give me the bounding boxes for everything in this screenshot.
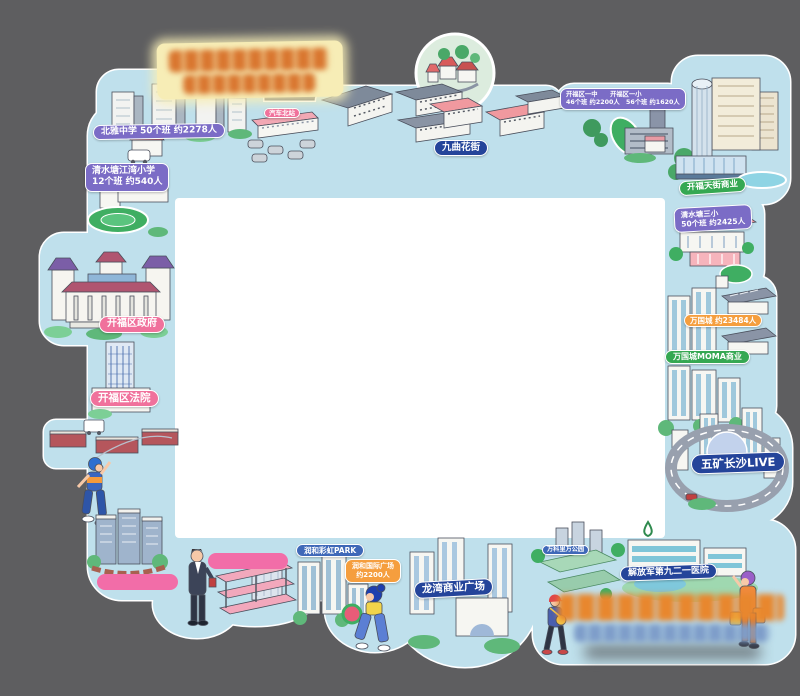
badge-runhe-international: 润和国际广场 约2200人 bbox=[345, 559, 401, 583]
blank-pink-label-1 bbox=[208, 553, 288, 569]
badge-jiangwan-primary: 清水塘江湾小学 12个班 约540人 bbox=[85, 163, 169, 192]
badge-district-court: 开福区法院 bbox=[90, 390, 159, 407]
blurred-title-line-1 bbox=[169, 48, 329, 73]
badge-qst-third-school: 清水塘三小 50个班 约2425人 bbox=[673, 204, 752, 233]
badge-runhe-rainbow-park: 润和彩虹PARK bbox=[296, 544, 364, 557]
badge-qst3-line2: 50个班 约2425人 bbox=[681, 217, 745, 230]
badge-kaifu-schools: 开福区一中 开福区一小 46个班 约2200人 56个班 约1620人 bbox=[560, 88, 686, 110]
title-banner-blurred bbox=[157, 40, 344, 99]
badge-bus-station: 汽车北站 bbox=[264, 108, 300, 118]
footer-shadow-smudge bbox=[585, 646, 760, 658]
poster-canvas: 北雅中学 50个班 约2278人 清水塘江湾小学 12个班 约540人 汽车北站… bbox=[0, 0, 800, 696]
badge-jiangwan-line2: 12个班 约540人 bbox=[92, 177, 162, 188]
badge-wanguocheng: 万国城 约23484人 bbox=[684, 314, 762, 327]
badge-beiya-middle-school: 北雅中学 50个班 约2278人 bbox=[93, 123, 225, 141]
badge-jiuqu-street: 九曲花街 bbox=[434, 140, 488, 156]
blurred-title-line-2 bbox=[183, 73, 315, 94]
blank-pink-label-2 bbox=[97, 574, 178, 590]
badge-runhe-intl-line2: 约2200人 bbox=[352, 571, 394, 580]
badge-moma-commercial: 万国城MOMA商业 bbox=[665, 350, 750, 364]
badge-wanke-park: 万科里万公园 bbox=[542, 545, 589, 555]
badge-runhe-intl-line1: 润和国际广场 bbox=[352, 562, 394, 571]
badge-wukuang-live: 五矿长沙LIVE bbox=[691, 451, 786, 475]
badge-kaifu-schools-line2: 46个班 约2200人 56个班 约1620人 bbox=[566, 99, 680, 107]
towers-bottomleft bbox=[87, 509, 168, 574]
badge-jiangwan-line1: 清水塘江湾小学 bbox=[92, 166, 162, 177]
white-center-area bbox=[175, 198, 665, 538]
badge-district-government: 开福区政府 bbox=[99, 316, 165, 333]
blurred-footer-line-1 bbox=[558, 594, 784, 621]
badge-kaifu-schools-line1: 开福区一中 开福区一小 bbox=[566, 91, 680, 99]
blurred-footer-line-2 bbox=[574, 624, 770, 642]
